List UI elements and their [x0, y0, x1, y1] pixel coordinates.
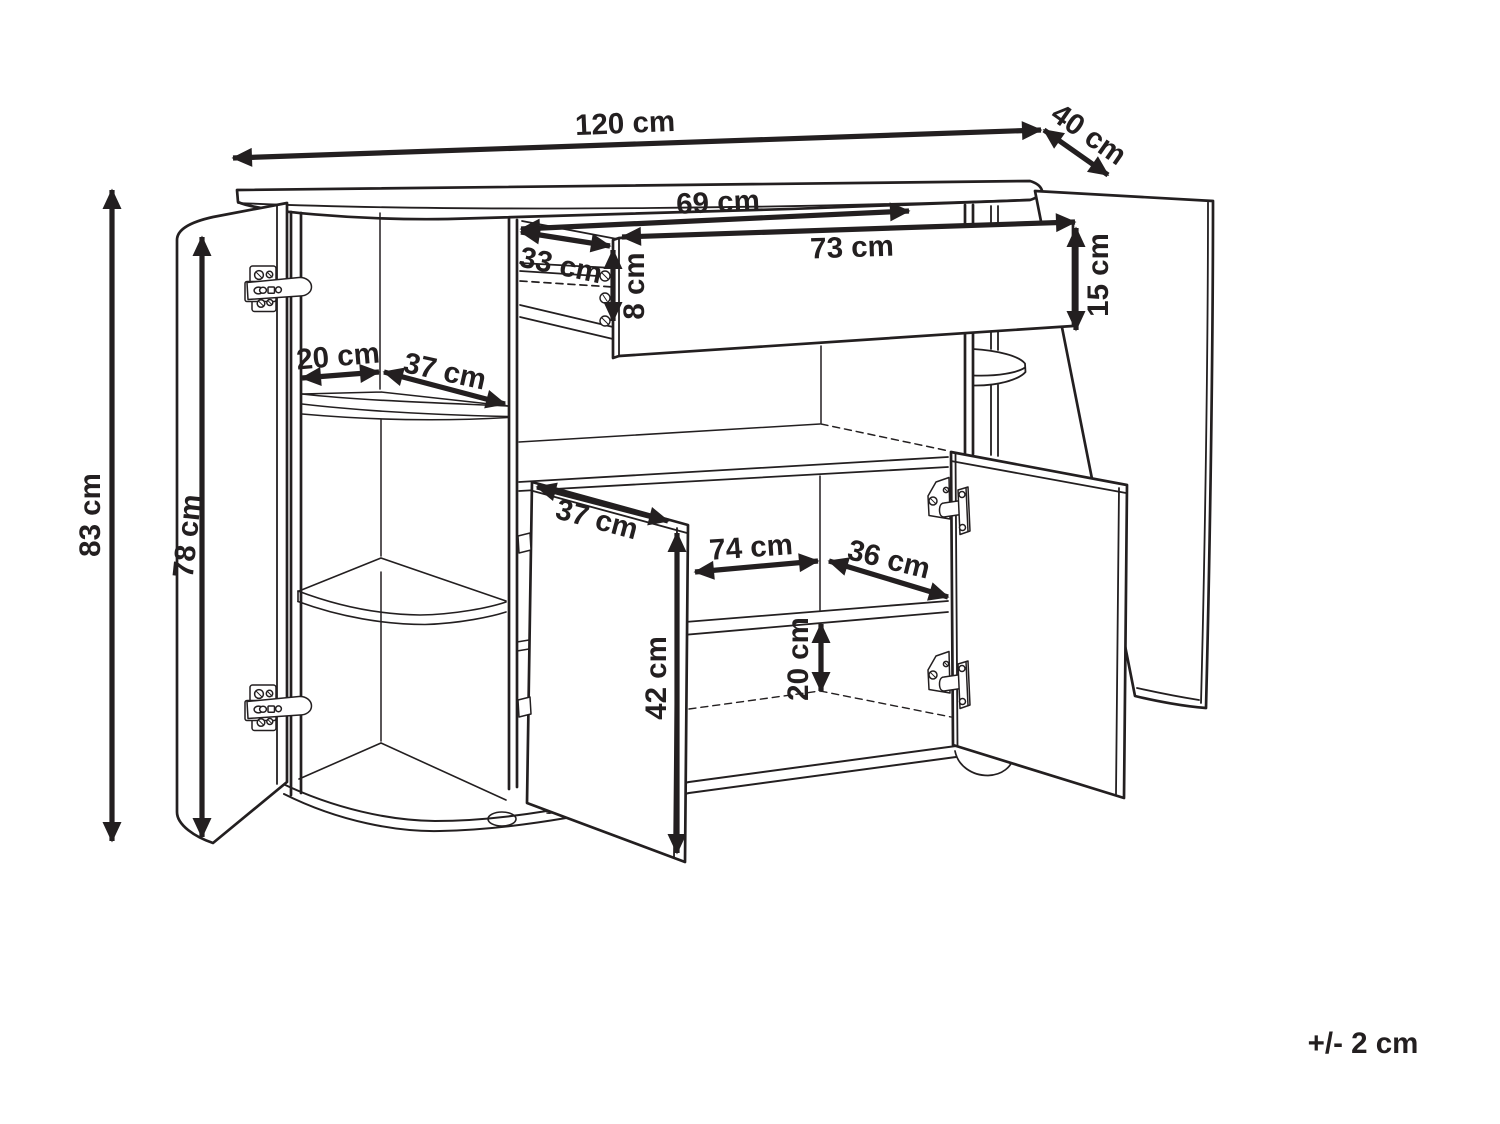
- svg-text:8 cm: 8 cm: [618, 252, 651, 319]
- svg-text:120 cm: 120 cm: [574, 105, 675, 142]
- svg-text:+/- 2 cm: +/- 2 cm: [1308, 1027, 1419, 1060]
- svg-text:83 cm: 83 cm: [74, 473, 107, 557]
- svg-text:42 cm: 42 cm: [640, 636, 673, 720]
- svg-text:20 cm: 20 cm: [782, 617, 815, 701]
- svg-text:69 cm: 69 cm: [676, 184, 761, 221]
- svg-text:15 cm: 15 cm: [1082, 233, 1115, 317]
- svg-text:73 cm: 73 cm: [810, 230, 895, 266]
- svg-text:74 cm: 74 cm: [708, 528, 794, 567]
